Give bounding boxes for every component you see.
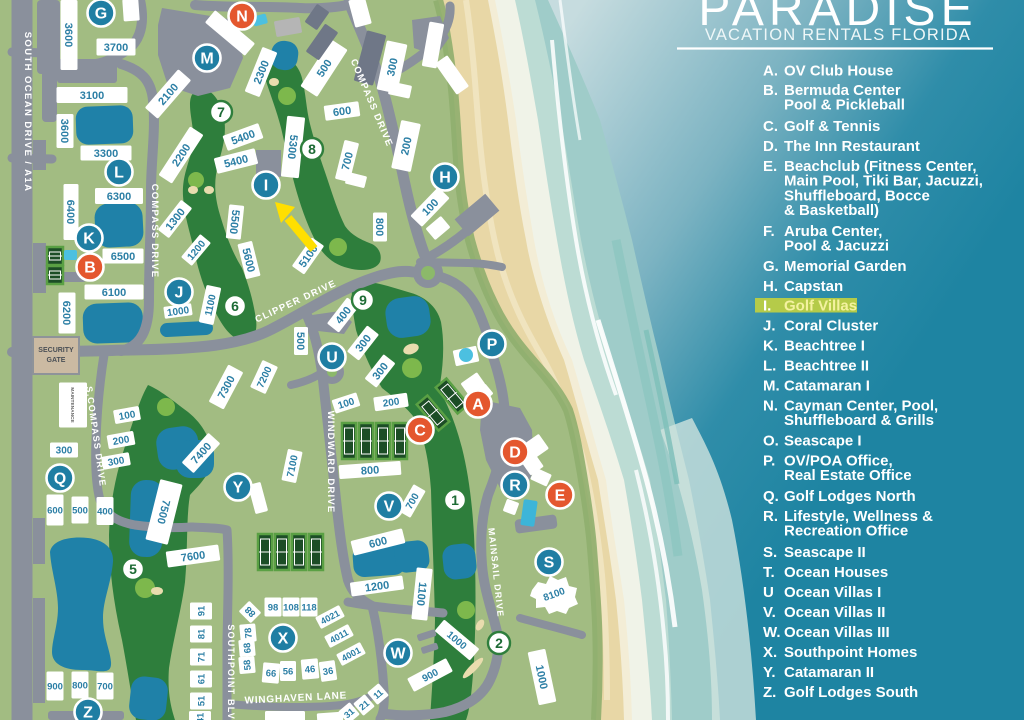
svg-text:Capstan: Capstan	[784, 278, 843, 295]
svg-text:W: W	[390, 646, 406, 663]
svg-text:V: V	[384, 499, 395, 516]
svg-text:6500: 6500	[111, 251, 135, 263]
svg-text:X.: X.	[763, 644, 777, 661]
svg-text:3700: 3700	[104, 42, 128, 54]
svg-text:T.: T.	[763, 564, 775, 581]
svg-text:Real Estate Office: Real Estate Office	[784, 467, 912, 484]
svg-text:K.: K.	[763, 338, 778, 355]
svg-text:Southpoint Homes: Southpoint Homes	[784, 644, 917, 661]
svg-text:71: 71	[196, 651, 207, 662]
svg-text:Z.: Z.	[763, 684, 776, 701]
svg-text:8: 8	[308, 141, 316, 157]
svg-text:500: 500	[294, 332, 306, 350]
svg-text:5: 5	[129, 561, 137, 577]
svg-text:SOUTH OCEAN DRIVE / A1A: SOUTH OCEAN DRIVE / A1A	[22, 32, 33, 193]
svg-text:6400: 6400	[64, 200, 76, 224]
svg-text:SOUTHPOINT BLVD: SOUTHPOINT BLVD	[226, 624, 236, 720]
svg-text:GATE: GATE	[47, 357, 66, 364]
svg-text:M.: M.	[763, 378, 780, 395]
svg-text:C.: C.	[763, 118, 778, 135]
svg-text:1100: 1100	[414, 581, 428, 606]
svg-text:M: M	[200, 51, 213, 68]
svg-text:I: I	[264, 178, 268, 195]
svg-text:Ocean Houses: Ocean Houses	[784, 564, 888, 581]
svg-text:3600: 3600	[58, 119, 70, 143]
svg-text:WINDWARD DRIVE: WINDWARD DRIVE	[325, 411, 336, 514]
svg-text:Seascape II: Seascape II	[784, 544, 866, 561]
svg-text:COMPASS DRIVE: COMPASS DRIVE	[149, 184, 160, 279]
svg-text:Y.: Y.	[763, 664, 776, 681]
svg-text:6: 6	[231, 298, 239, 314]
svg-text:W.: W.	[763, 624, 781, 641]
svg-text:K: K	[83, 231, 95, 248]
svg-text:B: B	[84, 260, 96, 277]
svg-text:91: 91	[196, 605, 207, 616]
svg-text:Pool & Pickleball: Pool & Pickleball	[784, 97, 905, 114]
svg-text:61: 61	[196, 673, 207, 684]
svg-text:81: 81	[196, 628, 207, 639]
svg-text:U: U	[763, 584, 774, 601]
svg-text:78: 78	[243, 627, 255, 638]
svg-text:H.: H.	[763, 278, 778, 295]
svg-text:68: 68	[242, 642, 254, 653]
svg-text:5500: 5500	[227, 209, 241, 235]
svg-text:& Basketball): & Basketball)	[784, 202, 879, 219]
svg-text:S.: S.	[763, 544, 777, 561]
svg-text:E: E	[555, 488, 566, 505]
svg-text:Ocean Villas III: Ocean Villas III	[784, 624, 890, 641]
svg-text:2: 2	[495, 635, 503, 651]
svg-text:OV Club House: OV Club House	[784, 63, 893, 80]
svg-text:400: 400	[97, 506, 113, 517]
svg-text:V.: V.	[763, 604, 776, 621]
svg-text:Golf Lodges North: Golf Lodges North	[784, 488, 916, 505]
svg-text:B.: B.	[763, 82, 778, 99]
svg-text:J.: J.	[763, 318, 776, 335]
svg-text:3100: 3100	[80, 90, 104, 102]
svg-text:600: 600	[47, 505, 63, 516]
svg-text:5300: 5300	[285, 134, 299, 160]
svg-text:Coral Cluster: Coral Cluster	[784, 318, 878, 335]
svg-text:Golf Villas: Golf Villas	[784, 298, 857, 315]
svg-text:Catamaran II: Catamaran II	[784, 664, 874, 681]
svg-text:200: 200	[382, 396, 400, 409]
svg-text:800: 800	[360, 464, 379, 477]
svg-text:Z: Z	[83, 705, 93, 720]
svg-text:E.: E.	[763, 158, 777, 175]
svg-text:Catamaran I: Catamaran I	[784, 378, 870, 395]
svg-text:F.: F.	[763, 223, 775, 240]
svg-text:46: 46	[304, 664, 315, 676]
svg-text:U: U	[326, 350, 338, 367]
svg-text:P.: P.	[763, 453, 775, 470]
svg-text:SECURITY: SECURITY	[38, 347, 74, 354]
svg-text:66: 66	[265, 668, 276, 680]
svg-text:VACATION RENTALS FLORIDA: VACATION RENTALS FLORIDA	[705, 26, 971, 44]
svg-text:9: 9	[359, 292, 367, 308]
svg-text:6200: 6200	[60, 301, 72, 325]
svg-text:36: 36	[322, 666, 334, 678]
svg-text:58: 58	[242, 659, 254, 670]
svg-text:C: C	[414, 423, 426, 440]
svg-text:500: 500	[72, 505, 88, 516]
svg-text:900: 900	[47, 681, 63, 692]
svg-text:MAINTENANCE: MAINTENANCE	[69, 387, 75, 423]
svg-text:6300: 6300	[107, 191, 131, 203]
svg-text:7: 7	[217, 104, 225, 120]
svg-text:R.: R.	[763, 508, 778, 525]
svg-text:O.: O.	[763, 433, 779, 450]
svg-text:P: P	[487, 337, 498, 354]
svg-text:3600: 3600	[62, 23, 74, 47]
svg-text:L: L	[114, 165, 124, 182]
svg-text:118: 118	[301, 602, 316, 613]
svg-text:700: 700	[97, 681, 113, 692]
svg-text:N: N	[236, 9, 248, 26]
svg-text:Seascape I: Seascape I	[784, 433, 862, 450]
svg-text:51: 51	[196, 695, 207, 706]
svg-text:Memorial Garden: Memorial Garden	[784, 258, 907, 275]
svg-text:G: G	[95, 6, 107, 23]
svg-text:Y: Y	[233, 480, 244, 497]
svg-text:1: 1	[451, 492, 459, 508]
svg-text:Ocean Villas I: Ocean Villas I	[784, 584, 881, 601]
svg-text:D: D	[509, 445, 521, 462]
svg-text:98: 98	[268, 602, 279, 613]
svg-text:Beachtree I: Beachtree I	[784, 338, 865, 355]
svg-text:Recreation Office: Recreation Office	[784, 523, 908, 540]
svg-text:N.: N.	[763, 398, 778, 415]
svg-text:A.: A.	[763, 63, 778, 80]
svg-text:300: 300	[56, 446, 73, 457]
svg-text:Golf & Tennis: Golf & Tennis	[784, 118, 880, 135]
svg-text:800: 800	[373, 218, 385, 236]
svg-text:Ocean Villas II: Ocean Villas II	[784, 604, 885, 621]
svg-text:Q.: Q.	[763, 488, 779, 505]
svg-text:Beachtree II: Beachtree II	[784, 358, 869, 375]
svg-text:108: 108	[283, 602, 299, 613]
svg-text:A: A	[472, 397, 484, 414]
svg-text:R: R	[509, 478, 521, 495]
svg-text:S: S	[544, 555, 555, 572]
svg-text:Golf Lodges South: Golf Lodges South	[784, 684, 918, 701]
svg-text:600: 600	[332, 105, 352, 119]
svg-text:X: X	[278, 631, 289, 648]
svg-text:Pool & Jacuzzi: Pool & Jacuzzi	[784, 238, 889, 255]
svg-text:J: J	[175, 285, 184, 302]
svg-text:Q: Q	[54, 471, 66, 488]
svg-text:H: H	[439, 170, 451, 187]
svg-text:56: 56	[283, 666, 294, 677]
svg-text:Shuffleboard & Grills: Shuffleboard & Grills	[784, 412, 934, 429]
svg-text:I.: I.	[763, 298, 771, 315]
svg-text:The Inn Restaurant: The Inn Restaurant	[784, 138, 920, 155]
svg-text:L.: L.	[763, 358, 776, 375]
svg-text:G.: G.	[763, 258, 779, 275]
svg-text:6100: 6100	[102, 287, 126, 299]
svg-text:D.: D.	[763, 138, 778, 155]
svg-text:800: 800	[72, 680, 88, 691]
svg-text:41: 41	[195, 712, 206, 720]
